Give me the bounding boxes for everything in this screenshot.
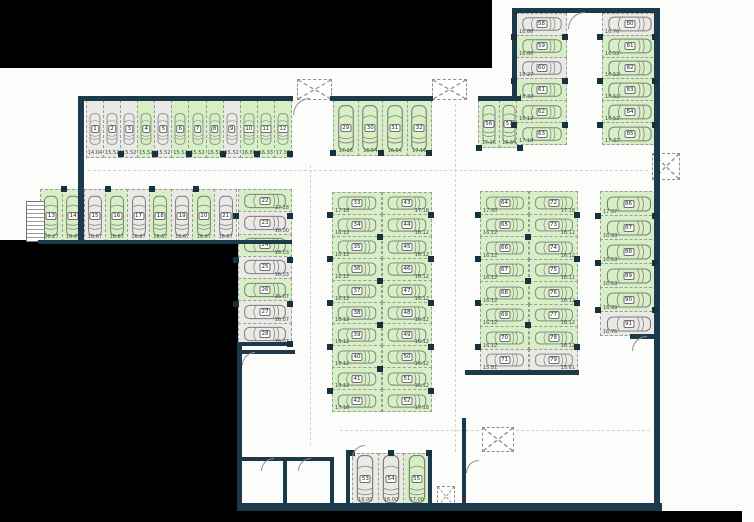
parking-space-51[interactable]: 5116.12 bbox=[382, 367, 432, 390]
pillar bbox=[511, 34, 517, 40]
pillar bbox=[597, 78, 603, 84]
parking-space-35[interactable]: 3516.12 bbox=[332, 236, 382, 259]
space-number: 82 bbox=[625, 64, 636, 72]
parking-space-33[interactable]: 3317.18 bbox=[332, 192, 382, 215]
space-dimension: 17.16 bbox=[412, 148, 426, 154]
space-dimension: 17.00 bbox=[483, 208, 497, 214]
pillar bbox=[426, 450, 432, 456]
space-number: 47 bbox=[402, 287, 413, 295]
space-dimension: 17.18 bbox=[415, 208, 429, 214]
space-dimension: 16.12 bbox=[335, 317, 349, 323]
parking-space-61[interactable]: 6116.33 bbox=[516, 78, 567, 101]
parking-space-90[interactable]: 9016.39 bbox=[600, 287, 657, 312]
pillar bbox=[428, 212, 434, 218]
parking-space-27[interactable]: 2716.07 bbox=[238, 300, 292, 323]
parking-space-9[interactable]: 915.52 bbox=[223, 100, 241, 158]
space-dimension: 16.12 bbox=[483, 298, 497, 304]
space-number: 46 bbox=[402, 265, 413, 273]
parking-space-50[interactable]: 5016.12 bbox=[382, 345, 432, 368]
space-dimension: 16.66 bbox=[519, 51, 533, 57]
parking-space-89[interactable]: 8916.53 bbox=[600, 263, 657, 288]
space-dimension: 16.12 bbox=[483, 275, 497, 281]
drive-lane-line bbox=[310, 165, 311, 445]
vent-shaft-icon bbox=[432, 79, 467, 100]
space-number: 58 bbox=[536, 20, 547, 28]
space-dimension: 16.12 bbox=[335, 383, 349, 389]
parking-space-19[interactable]: 1916.67 bbox=[171, 189, 194, 242]
parking-space-22[interactable]: 2217.18 bbox=[238, 189, 292, 212]
space-dimension: 16.12 bbox=[561, 343, 575, 349]
space-number: 18 bbox=[155, 212, 166, 220]
space-dimension: 16.54 bbox=[363, 148, 377, 154]
space-dimension: 16.12 bbox=[483, 230, 497, 236]
parking-space-32[interactable]: 3217.16 bbox=[407, 100, 433, 156]
parking-row-29-32: 2917.163016.543116.543217.16 bbox=[333, 100, 432, 156]
parking-space-72[interactable]: 7217.18 bbox=[529, 191, 578, 215]
parking-space-67[interactable]: 6716.12 bbox=[480, 259, 529, 283]
space-number: 78 bbox=[548, 334, 559, 342]
parking-space-46[interactable]: 4616.12 bbox=[382, 258, 432, 281]
parking-space-87[interactable]: 8716.33 bbox=[600, 215, 657, 240]
wall bbox=[237, 342, 293, 346]
pillar bbox=[475, 300, 481, 306]
space-number: 54 bbox=[386, 475, 397, 483]
space-dimension: 16.53 bbox=[603, 257, 617, 263]
space-dimension: 16.12 bbox=[335, 296, 349, 302]
pillar bbox=[476, 145, 482, 151]
parking-space-60[interactable]: 6016.27 bbox=[516, 57, 567, 80]
parking-space-45[interactable]: 4516.12 bbox=[382, 236, 432, 259]
parking-space-55[interactable]: 5517.00 bbox=[403, 453, 430, 505]
space-dimension: 16.12 bbox=[561, 230, 575, 236]
space-number: 33 bbox=[352, 199, 363, 207]
parking-space-88[interactable]: 8816.53 bbox=[600, 239, 657, 264]
wall bbox=[80, 96, 293, 101]
space-number: 45 bbox=[402, 243, 413, 251]
space-dimension: 16.12 bbox=[415, 230, 429, 236]
space-dimension: 16.12 bbox=[415, 383, 429, 389]
parking-space-20[interactable]: 2016.67 bbox=[192, 189, 215, 242]
parking-space-8[interactable]: 815.52 bbox=[206, 100, 224, 158]
space-number: 62 bbox=[536, 108, 547, 116]
pillar bbox=[428, 300, 434, 306]
pillar bbox=[327, 256, 333, 262]
parking-space-40[interactable]: 4016.12 bbox=[332, 345, 382, 368]
parking-space-74[interactable]: 7416.12 bbox=[529, 236, 578, 260]
parking-space-54[interactable]: 5416.00 bbox=[378, 453, 405, 505]
pillar bbox=[327, 212, 333, 218]
space-number: 11 bbox=[260, 125, 271, 133]
space-dimension: 16.12 bbox=[483, 320, 497, 326]
parking-space-29[interactable]: 2917.16 bbox=[333, 100, 359, 156]
wall bbox=[512, 8, 660, 13]
parking-space-38[interactable]: 3816.12 bbox=[332, 302, 382, 325]
pillar bbox=[562, 78, 568, 84]
pillar bbox=[330, 150, 336, 156]
space-number: 53 bbox=[360, 475, 371, 483]
parking-col-58-63: 5816.665916.666016.276116.336216.126317.… bbox=[516, 13, 567, 145]
parking-space-41[interactable]: 4116.12 bbox=[332, 367, 382, 390]
pillar bbox=[426, 150, 432, 156]
space-dimension: 16.12 bbox=[561, 253, 575, 259]
space-number: 7 bbox=[194, 125, 202, 133]
pillar bbox=[233, 301, 239, 307]
space-dimension: 16.12 bbox=[335, 339, 349, 345]
outside-area-bottom bbox=[0, 511, 742, 522]
space-dimension: 16.12 bbox=[335, 361, 349, 367]
parking-space-30[interactable]: 3016.54 bbox=[358, 100, 384, 156]
space-dimension: 16.12 bbox=[561, 275, 575, 281]
wall bbox=[330, 457, 334, 505]
space-number: 75 bbox=[548, 266, 559, 274]
parking-space-15[interactable]: 1516.67 bbox=[84, 189, 107, 242]
pillar bbox=[595, 260, 601, 266]
pillar bbox=[597, 34, 603, 40]
parking-space-82[interactable]: 8216.53 bbox=[602, 57, 658, 80]
parking-space-37[interactable]: 3716.12 bbox=[332, 280, 382, 303]
parking-space-66[interactable]: 6616.12 bbox=[480, 236, 529, 260]
parking-row-13-21: 1320.271416.671516.671616.671716.671816.… bbox=[40, 189, 237, 242]
pillar bbox=[652, 307, 658, 313]
pillar bbox=[377, 278, 383, 284]
parking-row-53-55: 5316.005416.005517.00 bbox=[352, 453, 430, 505]
space-dimension: 16.33 bbox=[519, 94, 533, 100]
space-number: 1 bbox=[91, 125, 99, 133]
parking-space-24[interactable]: 2416.03 bbox=[238, 234, 292, 257]
parking-space-53[interactable]: 5316.00 bbox=[352, 453, 379, 505]
space-number: 30 bbox=[365, 124, 376, 132]
pillar bbox=[287, 341, 293, 347]
space-number: 66 bbox=[499, 244, 510, 252]
space-number: 84 bbox=[625, 108, 636, 116]
pillar bbox=[105, 186, 111, 192]
space-dimension: 16.12 bbox=[415, 339, 429, 345]
space-number: 36 bbox=[352, 265, 363, 273]
parking-space-85[interactable]: 8517.37 bbox=[602, 122, 658, 145]
space-number: 42 bbox=[352, 397, 363, 405]
pillar bbox=[595, 213, 601, 219]
pillar bbox=[511, 122, 517, 128]
parking-space-11[interactable]: 1116.33 bbox=[257, 100, 275, 158]
space-number: 72 bbox=[548, 199, 559, 207]
space-dimension: 16.53 bbox=[605, 94, 619, 100]
pillar bbox=[562, 34, 568, 40]
pillar bbox=[220, 151, 226, 157]
space-number: 44 bbox=[402, 221, 413, 229]
space-number: 19 bbox=[177, 212, 188, 220]
parking-space-59[interactable]: 5916.66 bbox=[516, 35, 567, 58]
pillar bbox=[597, 122, 603, 128]
space-dimension: 15.52 bbox=[122, 150, 136, 156]
space-number: 15 bbox=[89, 212, 100, 220]
space-number: 73 bbox=[548, 221, 559, 229]
parking-space-17[interactable]: 1716.67 bbox=[127, 189, 150, 242]
parking-space-75[interactable]: 7516.12 bbox=[529, 259, 578, 283]
parking-space-52[interactable]: 5217.18 bbox=[382, 389, 432, 412]
parking-col-64-71: 6417.006516.126616.126716.126816.126916.… bbox=[480, 191, 529, 372]
space-number: 32 bbox=[414, 124, 425, 132]
space-dimension: 16.00 bbox=[275, 228, 289, 234]
space-dimension: 16.12 bbox=[335, 230, 349, 236]
parking-space-4[interactable]: 415.52 bbox=[137, 100, 155, 158]
space-dimension: 16.12 bbox=[415, 296, 429, 302]
space-dimension: 15.52 bbox=[156, 150, 170, 156]
space-number: 16 bbox=[111, 212, 122, 220]
space-number: 63 bbox=[536, 130, 547, 138]
door-swing-icon bbox=[293, 98, 310, 115]
parking-space-86[interactable]: 8617.37 bbox=[600, 191, 657, 216]
space-dimension: 16.12 bbox=[335, 274, 349, 280]
drive-lane-line bbox=[88, 170, 648, 171]
parking-space-79[interactable]: 7915.81 bbox=[529, 349, 578, 373]
pillar bbox=[574, 344, 580, 350]
parking-space-81[interactable]: 8116.53 bbox=[602, 35, 658, 58]
pillar bbox=[388, 450, 394, 456]
space-number: 86 bbox=[623, 200, 634, 208]
pillar bbox=[574, 300, 580, 306]
space-number: 5 bbox=[160, 125, 168, 133]
wall bbox=[462, 418, 466, 505]
parking-space-78[interactable]: 7816.12 bbox=[529, 326, 578, 350]
space-dimension: 16.12 bbox=[415, 317, 429, 323]
pillar bbox=[378, 150, 384, 156]
outside-area-left bbox=[0, 240, 238, 522]
parking-space-47[interactable]: 4716.12 bbox=[382, 280, 432, 303]
space-dimension: 16.03 bbox=[275, 272, 289, 278]
pillar bbox=[118, 151, 124, 157]
wall bbox=[465, 370, 579, 375]
space-number: 21 bbox=[220, 212, 231, 220]
space-dimension: 16.54 bbox=[388, 148, 402, 154]
parking-space-5[interactable]: 515.52 bbox=[154, 100, 172, 158]
parking-space-65[interactable]: 6516.12 bbox=[480, 214, 529, 238]
space-number: 77 bbox=[548, 311, 559, 319]
pillar bbox=[186, 151, 192, 157]
parking-space-71[interactable]: 7115.81 bbox=[480, 349, 529, 373]
parking-space-12[interactable]: 1217.37 bbox=[274, 100, 292, 158]
parking-space-18[interactable]: 1816.67 bbox=[149, 189, 172, 242]
parking-space-91[interactable]: 9116.76 bbox=[600, 311, 657, 336]
space-number: 4 bbox=[143, 125, 151, 133]
space-number: 65 bbox=[499, 221, 510, 229]
space-dimension: 17.37 bbox=[605, 138, 619, 144]
parking-space-64[interactable]: 6417.00 bbox=[480, 191, 529, 215]
space-dimension: 15.52 bbox=[190, 150, 204, 156]
space-dimension: 15.52 bbox=[224, 150, 238, 156]
space-number: 52 bbox=[402, 397, 413, 405]
pillar bbox=[377, 366, 383, 372]
space-number: 60 bbox=[536, 64, 547, 72]
pillar bbox=[475, 256, 481, 262]
space-number: 87 bbox=[623, 224, 634, 232]
pillar bbox=[254, 151, 260, 157]
space-dimension: 16.33 bbox=[603, 233, 617, 239]
space-dimension: 16.54 bbox=[502, 140, 516, 146]
pillar bbox=[287, 151, 293, 157]
space-dimension: 17.37 bbox=[603, 209, 617, 215]
space-dimension: 16.39 bbox=[603, 305, 617, 311]
space-dimension: 16.33 bbox=[259, 150, 273, 156]
space-number: 81 bbox=[625, 42, 636, 50]
parking-space-70[interactable]: 7016.12 bbox=[480, 326, 529, 350]
space-dimension: 17.18 bbox=[561, 208, 575, 214]
space-number: 76 bbox=[548, 289, 559, 297]
space-dimension: 16.12 bbox=[561, 298, 575, 304]
space-number: 2 bbox=[108, 125, 116, 133]
parking-space-16[interactable]: 1616.67 bbox=[105, 189, 128, 242]
wall bbox=[346, 450, 350, 505]
pillar bbox=[562, 122, 568, 128]
parking-space-77[interactable]: 7716.12 bbox=[529, 304, 578, 328]
space-number: 90 bbox=[623, 296, 634, 304]
parking-space-36[interactable]: 3616.12 bbox=[332, 258, 382, 281]
pillar bbox=[152, 151, 158, 157]
pillar bbox=[193, 186, 199, 192]
wall bbox=[237, 345, 242, 507]
parking-space-31[interactable]: 3116.54 bbox=[382, 100, 408, 156]
parking-space-76[interactable]: 7616.12 bbox=[529, 281, 578, 305]
space-number: 64 bbox=[499, 199, 510, 207]
parking-space-6[interactable]: 615.52 bbox=[171, 100, 189, 158]
parking-space-7[interactable]: 715.52 bbox=[188, 100, 206, 158]
parking-space-26[interactable]: 2616.07 bbox=[238, 278, 292, 301]
space-number: 61 bbox=[536, 86, 547, 94]
pillar bbox=[377, 234, 383, 240]
space-number: 85 bbox=[625, 130, 636, 138]
space-number: 25 bbox=[260, 263, 271, 271]
parking-space-34[interactable]: 3416.12 bbox=[332, 214, 382, 237]
parking-space-63[interactable]: 6317.18 bbox=[516, 122, 567, 145]
space-dimension: 16.12 bbox=[415, 252, 429, 258]
parking-space-2[interactable]: 215.52 bbox=[103, 100, 121, 158]
pillar bbox=[428, 388, 434, 394]
space-number: 43 bbox=[402, 199, 413, 207]
pillar bbox=[233, 257, 239, 263]
wall bbox=[512, 8, 517, 100]
space-number: 22 bbox=[260, 197, 271, 205]
parking-space-23[interactable]: 2316.00 bbox=[238, 211, 292, 234]
space-number: 20 bbox=[198, 212, 209, 220]
pillar bbox=[327, 300, 333, 306]
pillar bbox=[428, 344, 434, 350]
space-dimension: 16.53 bbox=[605, 72, 619, 78]
parking-space-58[interactable]: 5816.66 bbox=[516, 13, 567, 36]
parking-space-84[interactable]: 8416.53 bbox=[602, 100, 658, 123]
space-number: 59 bbox=[536, 42, 547, 50]
space-number: 50 bbox=[402, 353, 413, 361]
pillar bbox=[233, 213, 239, 219]
parking-space-83[interactable]: 8316.53 bbox=[602, 78, 658, 101]
parking-space-49[interactable]: 4916.12 bbox=[382, 323, 432, 346]
parking-space-39[interactable]: 3916.12 bbox=[332, 323, 382, 346]
space-dimension: 16.12 bbox=[483, 253, 497, 259]
space-number: 8 bbox=[211, 125, 219, 133]
space-dimension: 16.07 bbox=[275, 317, 289, 323]
stairs-icon bbox=[26, 201, 45, 242]
pillar bbox=[595, 307, 601, 313]
space-number: 17 bbox=[133, 212, 144, 220]
pillar bbox=[652, 122, 658, 128]
pillar bbox=[149, 186, 155, 192]
space-number: 39 bbox=[352, 331, 363, 339]
pillar bbox=[652, 213, 658, 219]
space-number: 51 bbox=[402, 375, 413, 383]
space-dimension: 16.12 bbox=[415, 361, 429, 367]
pillar bbox=[377, 322, 383, 328]
pillar bbox=[517, 145, 523, 151]
space-dimension: 17.18 bbox=[335, 405, 349, 411]
pillar bbox=[428, 256, 434, 262]
parking-col-33-42: 3317.183416.123516.123616.123716.123816.… bbox=[332, 192, 382, 412]
space-dimension: 16.53 bbox=[605, 51, 619, 57]
pillar bbox=[287, 213, 293, 219]
parking-space-25[interactable]: 2516.03 bbox=[238, 256, 292, 279]
space-number: 23 bbox=[260, 219, 271, 227]
space-dimension: 16.12 bbox=[561, 320, 575, 326]
space-number: 71 bbox=[499, 356, 510, 364]
parking-space-48[interactable]: 4816.12 bbox=[382, 302, 432, 325]
parking-space-73[interactable]: 7316.12 bbox=[529, 214, 578, 238]
parking-space-10[interactable]: 1016.86 bbox=[240, 100, 258, 158]
pillar bbox=[574, 256, 580, 262]
wall bbox=[38, 240, 292, 244]
parking-space-80[interactable]: 8016.76 bbox=[602, 13, 658, 36]
parking-space-62[interactable]: 6216.12 bbox=[516, 100, 567, 123]
parking-space-68[interactable]: 6816.12 bbox=[480, 281, 529, 305]
pillar bbox=[511, 78, 517, 84]
door-swing-icon bbox=[568, 12, 585, 29]
space-number: 74 bbox=[548, 244, 559, 252]
door-swing-icon bbox=[466, 460, 479, 473]
vent-shaft-icon bbox=[482, 427, 514, 452]
pillar bbox=[652, 78, 658, 84]
space-dimension: 16.12 bbox=[483, 343, 497, 349]
parking-space-44[interactable]: 4416.12 bbox=[382, 214, 432, 237]
space-number: 31 bbox=[389, 124, 400, 132]
parking-floor-plan: 114.04215.52315.52415.52515.52615.52715.… bbox=[0, 0, 754, 522]
space-dimension: 16.12 bbox=[335, 252, 349, 258]
pillar bbox=[652, 260, 658, 266]
space-dimension: 17.18 bbox=[519, 138, 533, 144]
parking-space-3[interactable]: 315.52 bbox=[120, 100, 138, 158]
space-number: 56 bbox=[483, 120, 494, 128]
space-dimension: 16.76 bbox=[605, 29, 619, 35]
parking-space-1[interactable]: 114.04 bbox=[86, 100, 104, 158]
wall bbox=[283, 460, 287, 507]
space-number: 29 bbox=[340, 124, 351, 132]
wall bbox=[654, 334, 660, 510]
space-dimension: 17.16 bbox=[339, 148, 353, 154]
space-dimension: 16.12 bbox=[415, 274, 429, 280]
space-dimension: 16.53 bbox=[603, 281, 617, 287]
outside-area-top bbox=[0, 0, 492, 68]
parking-space-43[interactable]: 4317.18 bbox=[382, 192, 432, 215]
wall bbox=[654, 8, 660, 338]
parking-space-42[interactable]: 4217.18 bbox=[332, 389, 382, 412]
space-number: 79 bbox=[548, 356, 559, 364]
wall bbox=[330, 96, 433, 101]
space-dimension: 16.76 bbox=[603, 329, 617, 335]
parking-space-56[interactable]: 5617.16 bbox=[478, 100, 500, 148]
space-dimension: 17.18 bbox=[415, 405, 429, 411]
pillar bbox=[525, 322, 531, 328]
wall bbox=[237, 350, 295, 354]
parking-col-80-85: 8016.768116.538216.538316.538416.538517.… bbox=[602, 13, 658, 145]
pillar bbox=[327, 388, 333, 394]
pillar bbox=[525, 234, 531, 240]
vent-shaft-icon bbox=[297, 79, 332, 100]
parking-space-69[interactable]: 6916.12 bbox=[480, 304, 529, 328]
